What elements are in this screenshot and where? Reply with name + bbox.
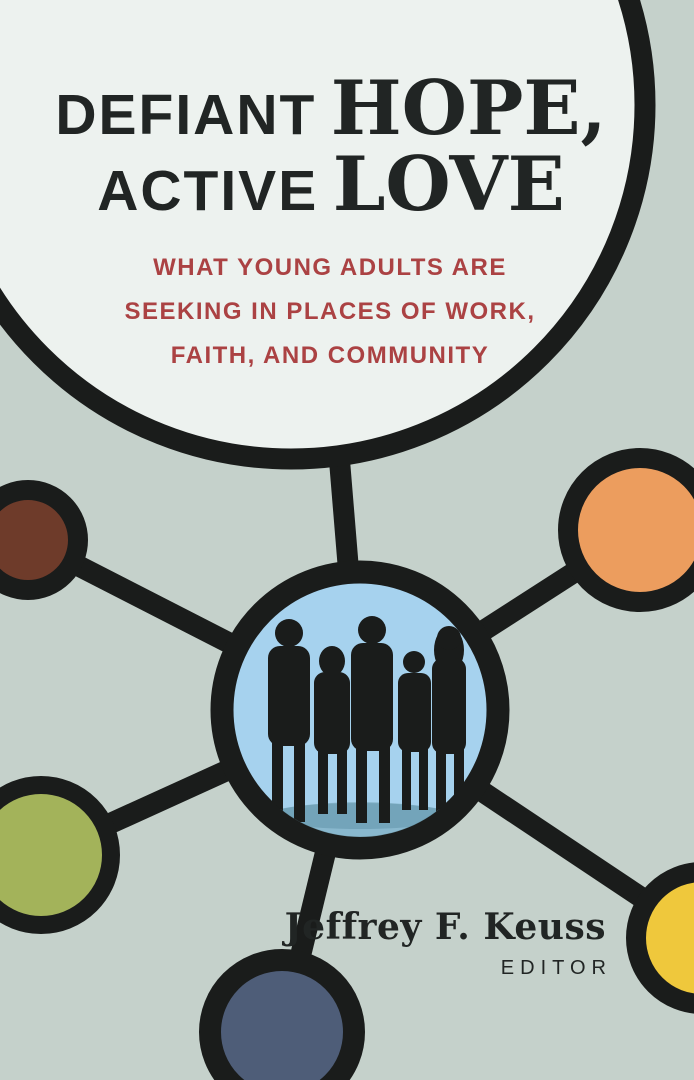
author-role: EDITOR [285,957,612,980]
book-cover: DEFIANT HOPE, ACTIVE LOVE WHAT YOUNG ADU… [0,0,694,1080]
subtitle-line-3: FAITH, AND COMMUNITY [15,334,645,378]
node-orange [568,458,694,602]
title-word-active: ACTIVE [97,159,318,223]
title-word-defiant: DEFIANT [55,83,316,147]
title-line-1: DEFIANT HOPE, [0,64,662,152]
subtitle-line-2: SEEKING IN PLACES OF WORK, [15,290,645,334]
title-word-love: LOVE [333,140,565,228]
author-block: Jeffrey F. Keuss EDITOR [285,906,606,980]
node-yellow [636,872,694,1004]
node-olive [0,785,111,925]
title-line-2: ACTIVE LOVE [0,140,662,228]
subtitle: WHAT YOUNG ADULTS ARE SEEKING IN PLACES … [15,246,645,378]
title-word-hope: HOPE, [331,64,607,152]
author-name: Jeffrey F. Keuss [285,906,606,948]
node-brown [0,490,78,590]
subtitle-line-1: WHAT YOUNG ADULTS ARE [15,246,645,290]
